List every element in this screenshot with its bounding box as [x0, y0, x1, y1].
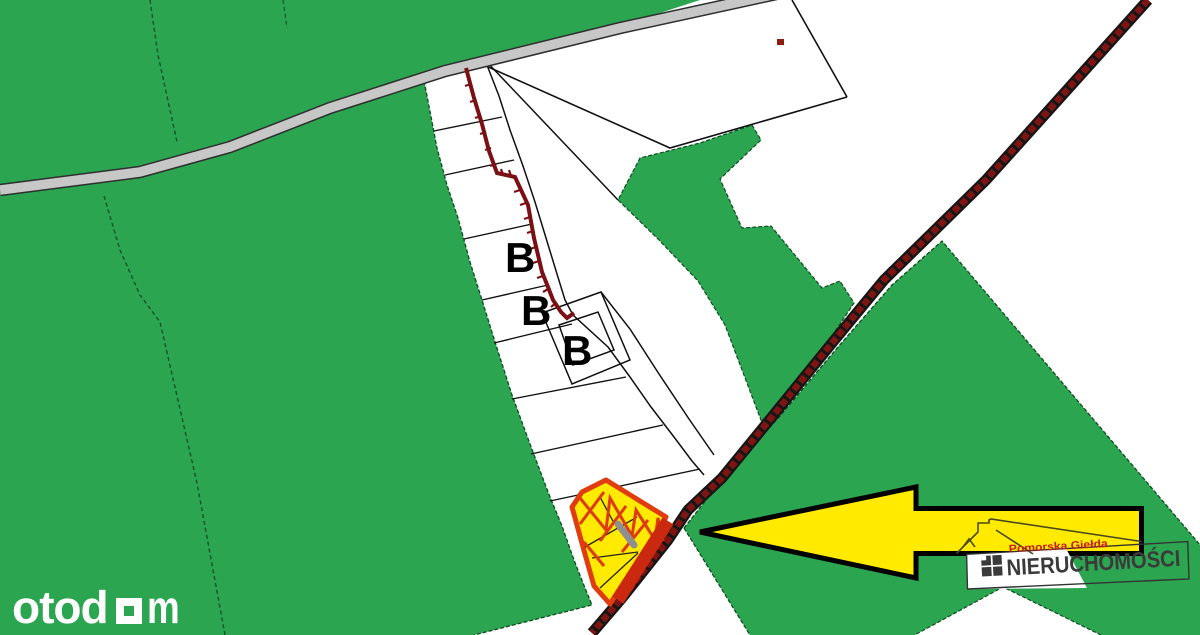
svg-text:B: B [521, 287, 551, 334]
svg-text:B: B [505, 234, 535, 281]
svg-text:otod: otod [12, 581, 108, 633]
svg-text:m: m [147, 581, 180, 633]
svg-text:B: B [562, 327, 592, 374]
